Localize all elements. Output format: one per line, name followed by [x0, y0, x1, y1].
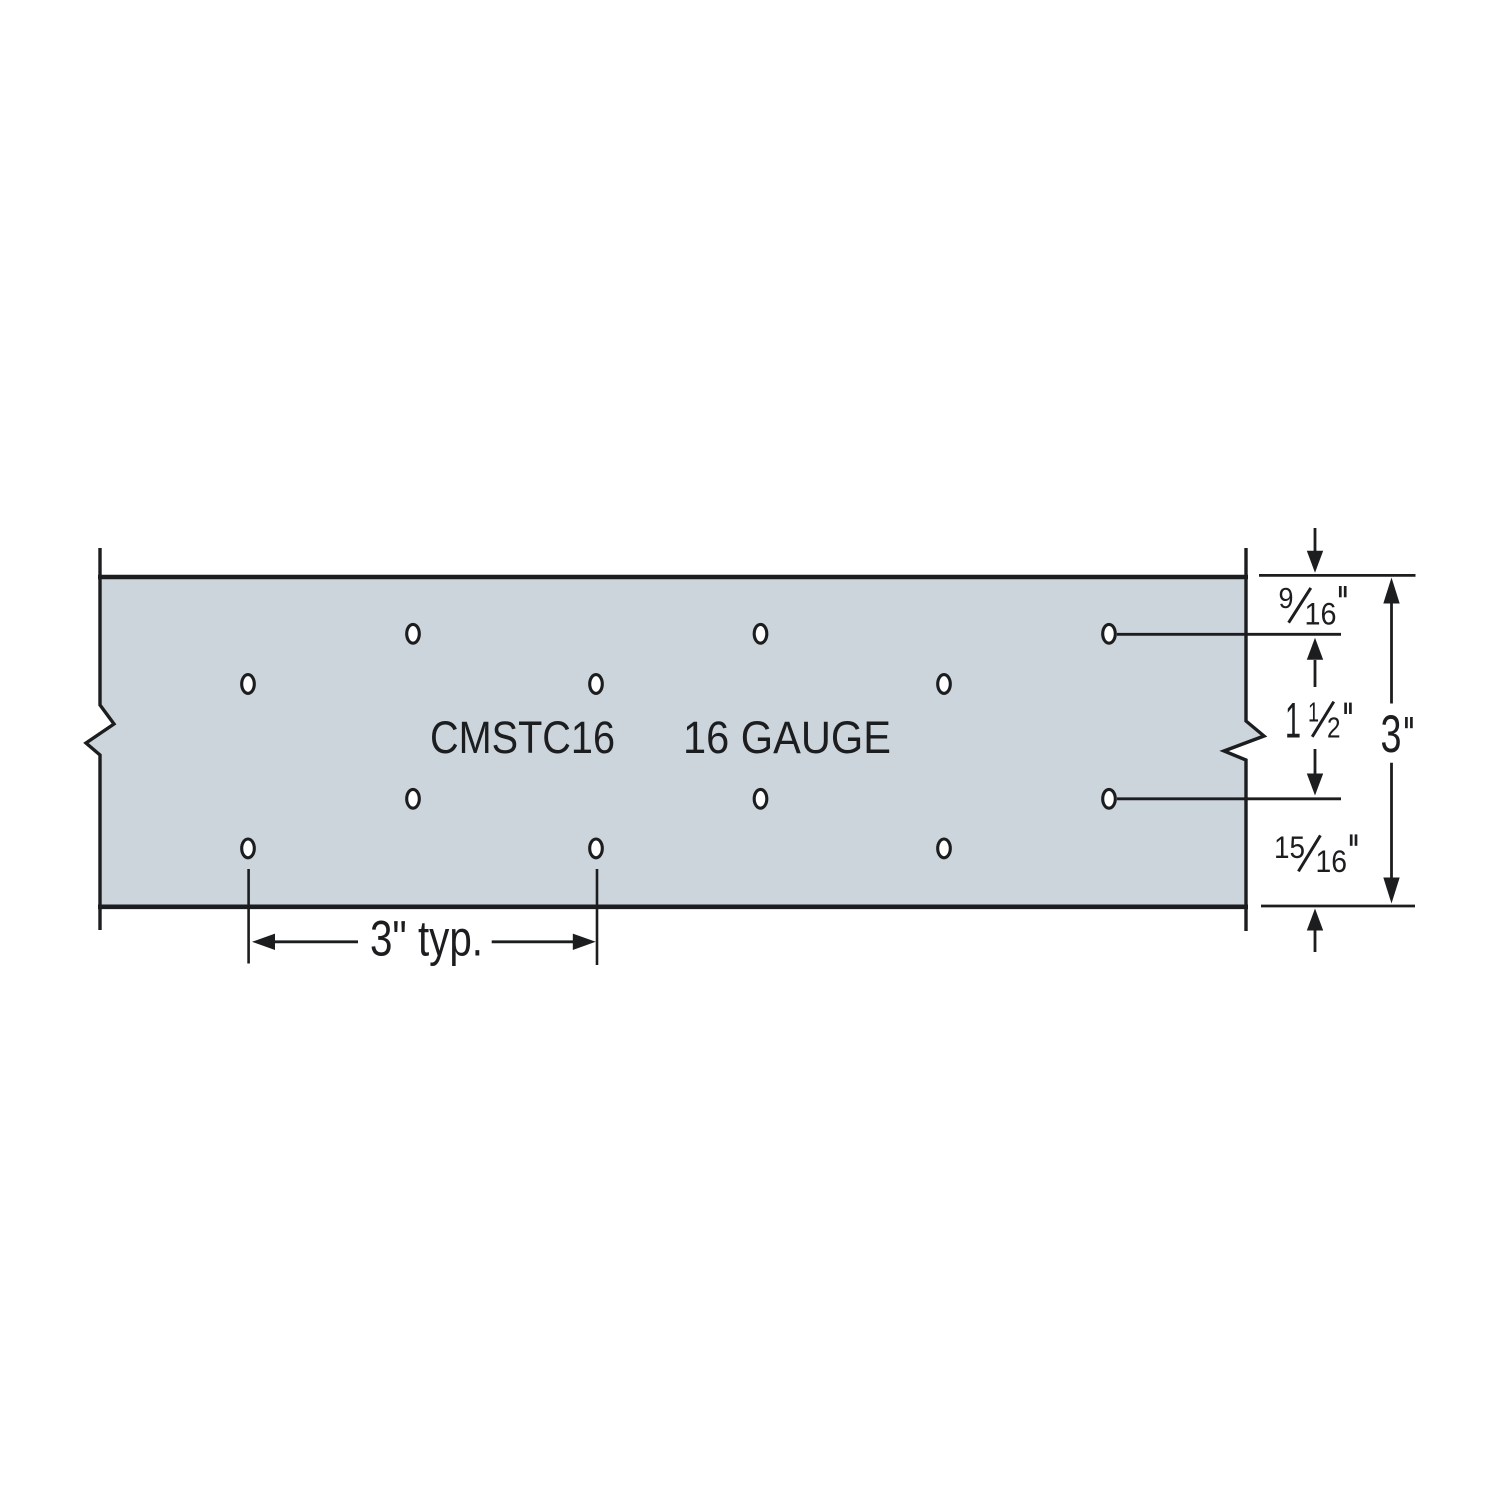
svg-text:3: 3 — [1381, 705, 1402, 764]
svg-text:2: 2 — [1327, 712, 1341, 744]
svg-text:16 GAUGE: 16 GAUGE — [683, 712, 891, 763]
svg-text:15: 15 — [1274, 829, 1305, 865]
svg-text:1: 1 — [1285, 692, 1301, 748]
svg-text:16: 16 — [1316, 843, 1348, 879]
svg-text:CMSTC16: CMSTC16 — [430, 712, 615, 763]
svg-text:9: 9 — [1279, 583, 1294, 615]
svg-text:16: 16 — [1305, 596, 1337, 632]
svg-text:1: 1 — [1308, 696, 1319, 727]
svg-text:3" typ.: 3" typ. — [370, 911, 483, 967]
